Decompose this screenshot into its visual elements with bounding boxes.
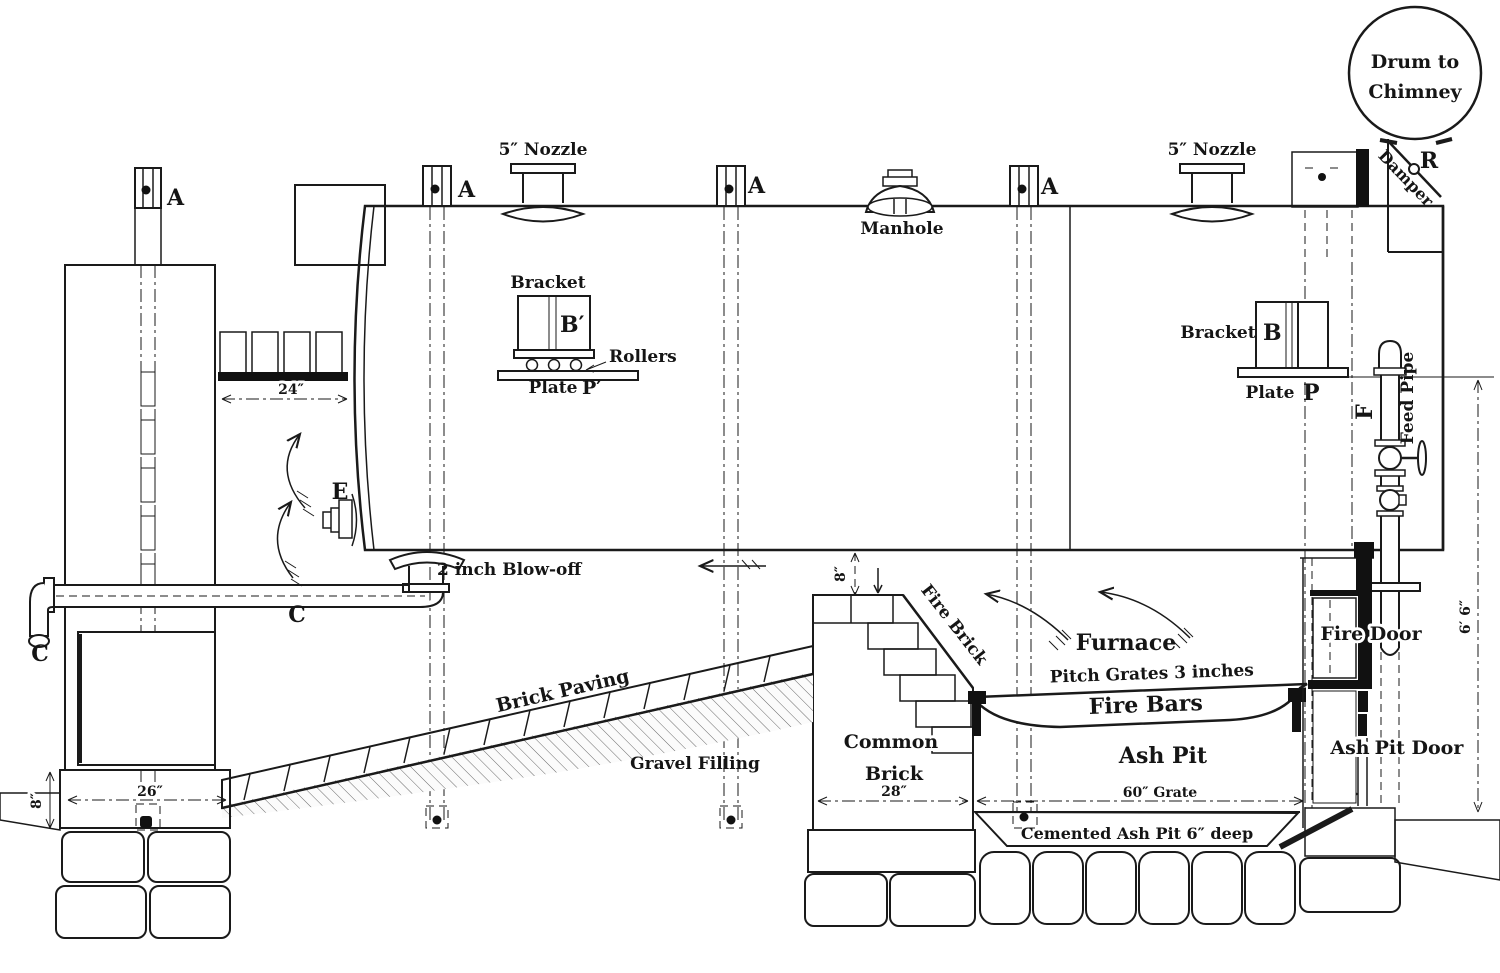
dim-60-grate: 60″ Grate [1123,785,1197,801]
label-gravel-filling: Gravel Filling [630,754,760,774]
bridge-wall: Fire Brick Common Brick 28″ [813,568,992,830]
label-feed-pipe: Feed Pipe [1398,352,1418,445]
label-bracket-b: B [1263,320,1282,346]
dim-28: 28″ [881,784,907,800]
feed-valve [1379,447,1401,469]
label-e: E [332,479,349,505]
arch-headers [218,332,348,381]
label-fire-bars: Fire Bars [1088,690,1203,720]
label-c-end: C [31,641,49,667]
label-fire-brick: Fire Brick [916,581,992,670]
anchor-bolt [717,166,745,206]
dim-26: 26″ [137,784,163,800]
label-bracket-bprime: B′ [560,312,585,338]
dim-8-gap: 8″ [833,566,849,582]
label-feed-f: F [1352,404,1378,420]
label-brick-paving: Brick Paving [494,665,632,717]
label-common-brick-1: Common [844,731,939,753]
label-drum-line1: Drum to [1371,51,1459,73]
manhole: Manhole [860,170,943,239]
damper-slots [141,372,155,598]
front-footing [1305,808,1395,856]
dim-rear-space: 24″ [222,382,347,403]
label-plate-left: Plate [529,378,578,398]
label-plate-right: Plate [1246,383,1295,403]
label-drum-line2: Chimney [1368,81,1462,103]
boiler-setting-diagram: 24″ A A A A 5″ Nozzle 5″ Nozzle Manhole … [0,0,1500,973]
dim-bridge-gap: 8″ [833,553,859,595]
label-nozzle-left: 5″ Nozzle [499,140,588,160]
label-plate-pprime: P′ [582,377,601,399]
label-ash-door-1: Ash [1329,737,1369,759]
label-fire-door: Fire Door [1320,623,1422,645]
label-anchor-a2: A [457,177,476,203]
label-anchor-a3: A [747,173,766,199]
label-pitch-grates: Pitch Grates 3 inches [1050,660,1255,687]
dim-bridge-width: 28″ [818,784,968,805]
dim-6-6: 6′ 6″ [1458,600,1474,634]
label-anchor-a1: A [166,185,185,211]
dim-24: 24″ [278,382,304,398]
label-ash-door-2: Pit Door [1375,737,1465,759]
label-plate-p: P [1303,380,1320,406]
label-furnace: Furnace [1076,630,1176,656]
stone-course-ashpit [980,852,1295,924]
flue-chamber [78,632,215,765]
foundations: 26″ 8″ [0,770,1500,938]
dim-grate: 60″ Grate [977,785,1303,805]
label-bracket-left: Bracket [510,273,585,293]
anchor-bolt [135,168,161,265]
label-damper-r: R [1420,148,1439,174]
label-cemented-ash-pit: Cemented Ash Pit 6″ deep [1021,824,1253,843]
furnace-grate: Furnace Pitch Grates 3 inches Fire Bars … [833,553,1358,847]
label-blow-off: 2 inch Blow-off [437,560,582,580]
stone-course-left [56,832,230,938]
rear-wall: 24″ [65,185,385,770]
label-c-pipe: C [288,602,306,628]
dim-foundation: 26″ 8″ [29,772,226,828]
stone-course-pier [805,874,975,926]
label-manhole: Manhole [860,219,943,239]
ground-right [1395,820,1500,880]
valve-handwheel [1418,441,1426,475]
fitting-e: E [323,479,357,546]
dim-8-foundation: 8″ [29,793,45,809]
label-bracket-right: Bracket [1180,323,1255,343]
anchor-bolt [423,166,451,206]
anchor-bolt [1010,166,1038,206]
pier-footing [808,830,975,872]
label-ash-pit: Ash Pit [1118,743,1208,769]
label-anchor-a4: A [1040,174,1059,200]
diagram-canvas: 24″ A A A A 5″ Nozzle 5″ Nozzle Manhole … [0,0,1500,973]
label-rollers: Rollers [609,347,677,367]
rod-anchors [426,802,1037,828]
check-valve [1380,490,1400,510]
drum-circle [1349,7,1481,139]
label-nozzle-right: 5″ Nozzle [1168,140,1257,160]
label-common-brick-2: Brick [865,763,924,785]
